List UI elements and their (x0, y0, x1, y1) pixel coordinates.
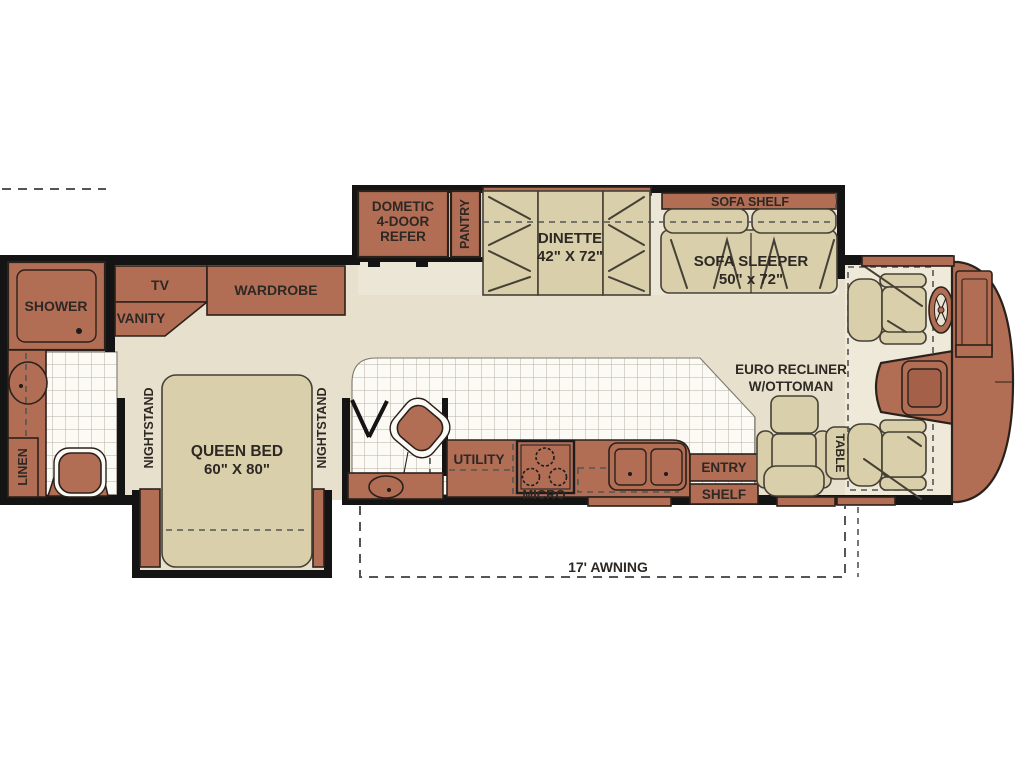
wardrobe: WARDROBE (207, 266, 345, 315)
half-bath-sink (369, 476, 403, 498)
refer-label-3: REFER (380, 229, 426, 244)
rv-floorplan-page: 17' AWNING SHOWER (0, 0, 1024, 768)
overhead-cabinet (862, 256, 954, 266)
bed-rail-left (140, 489, 160, 567)
nightstand-left-label: NIGHTSTAND (142, 387, 156, 468)
dashboard-console (876, 351, 953, 424)
pantry: PANTRY (451, 191, 480, 257)
stove (517, 441, 574, 493)
nightstand-right-label: NIGHTSTAND (315, 387, 329, 468)
awning-label: 17' AWNING (568, 559, 648, 575)
steering-wheel (929, 287, 953, 333)
shower: SHOWER (8, 262, 105, 350)
dinette-bench-right (603, 191, 650, 295)
table-label: TABLE (833, 433, 847, 472)
linen-cabinet: LINEN (8, 438, 38, 497)
tv-label: TV (151, 277, 170, 293)
entry-label: ENTRY (701, 460, 746, 475)
shower-drain (76, 328, 82, 334)
sofa-sleeper: SOFA SHELF SOFA SLEEPER 50" x 72" (661, 193, 837, 293)
dinette: DINETTE 42" X 72" (483, 191, 650, 295)
tv-cabinet: TV (115, 266, 207, 302)
micro-label: MICRO (522, 487, 565, 502)
utility-label: UTILITY (454, 452, 505, 467)
sofa-shelf-label: SOFA SHELF (711, 195, 789, 209)
queen-bed-slideout: QUEEN BED 60" X 80" NIGHTSTAND NIGHTSTAN… (140, 375, 329, 567)
refer-label-1: DOMETIC (372, 199, 434, 214)
wardrobe-label: WARDROBE (234, 282, 317, 298)
vanity-label: VANITY (117, 311, 166, 326)
dinette-label-1: DINETTE (538, 230, 602, 247)
rear-bath-toilet (48, 448, 108, 497)
euro-recliner-label-1: EURO RECLINER (735, 362, 847, 377)
bathroom-sink (9, 362, 47, 404)
sofa-label-1: SOFA SLEEPER (694, 253, 809, 270)
refrigerator: DOMETIC 4-DOOR REFER (358, 191, 448, 257)
refer-label-2: 4-DOOR (377, 214, 430, 229)
pantry-label: PANTRY (458, 198, 472, 249)
entry-door-area: ENTRY SHELF (690, 454, 758, 504)
kitchen: UTILITY MICRO (447, 440, 690, 502)
queen-bed-label-2: 60" X 80" (204, 461, 270, 478)
ottoman (771, 396, 818, 433)
shelf-label: SHELF (702, 487, 746, 502)
dinette-label-2: 42" X 72" (537, 248, 603, 265)
linen-label: LINEN (16, 448, 30, 486)
shower-label: SHOWER (25, 298, 88, 314)
bed-rail-right (313, 489, 324, 567)
euro-recliner-label-2: W/OTTOMAN (749, 379, 834, 394)
sofa-label-2: 50" x 72" (719, 271, 783, 288)
rv-floorplan-diagram: 17' AWNING SHOWER (0, 0, 1024, 768)
queen-bed: QUEEN BED 60" X 80" (162, 375, 312, 567)
queen-bed-label-1: QUEEN BED (191, 443, 283, 460)
kitchen-sink (609, 443, 686, 490)
